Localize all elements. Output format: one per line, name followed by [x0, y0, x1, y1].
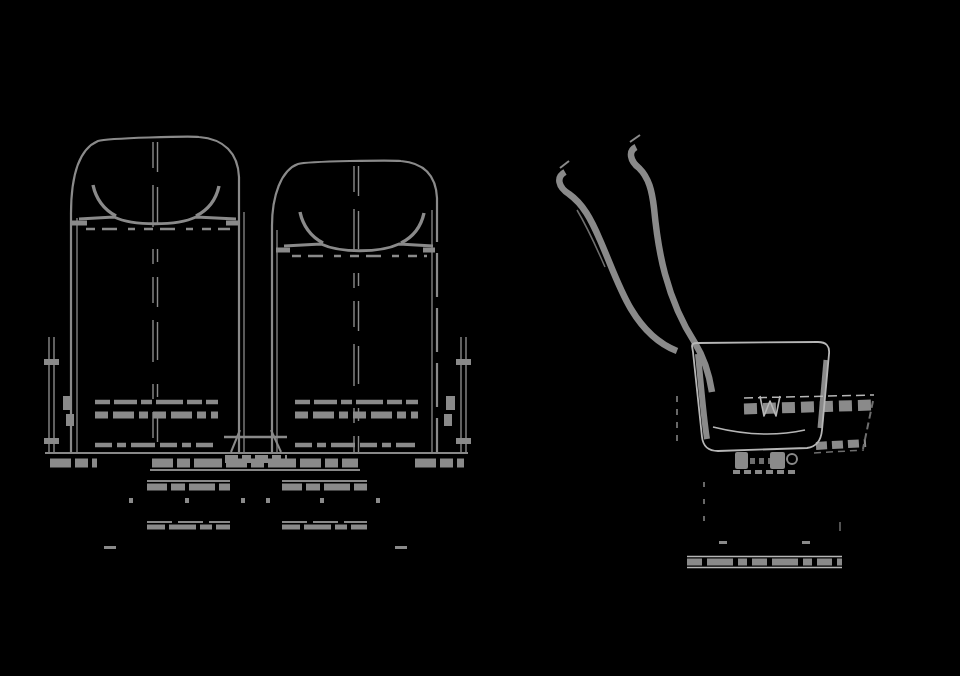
floor-foot-left-notch: [107, 554, 113, 560]
pedestal-bolt-5: [320, 498, 324, 503]
right-edge-bracket-blob-2: [444, 414, 452, 426]
pedestal-bolt-3: [241, 498, 245, 503]
right-edge-bracket-blob-1: [446, 396, 455, 410]
technical-drawing: [0, 0, 960, 676]
pedestal-bolt-6: [376, 498, 380, 503]
rail-clamp-right-tick: [802, 541, 810, 544]
left-edge-bracket-blob-1: [63, 396, 72, 410]
pedestal-bolt-2: [185, 498, 189, 503]
floor-foot-left-tick: [104, 546, 116, 549]
left-edge-bracket-blob-2: [66, 414, 74, 426]
floor-foot-right-tick: [395, 546, 407, 549]
pedestal-bolt-1: [129, 498, 133, 503]
floor-foot-right-notch: [398, 554, 404, 560]
pedestal-bolt-4: [266, 498, 270, 503]
drawing-canvas: [0, 0, 960, 676]
mechanism-block-a: [735, 452, 748, 469]
drawing-background: [0, 0, 960, 676]
mechanism-block-b: [770, 452, 785, 469]
hidden-armrest-lower-dash: [816, 443, 866, 446]
rail-clamp-left-tick: [719, 541, 727, 544]
